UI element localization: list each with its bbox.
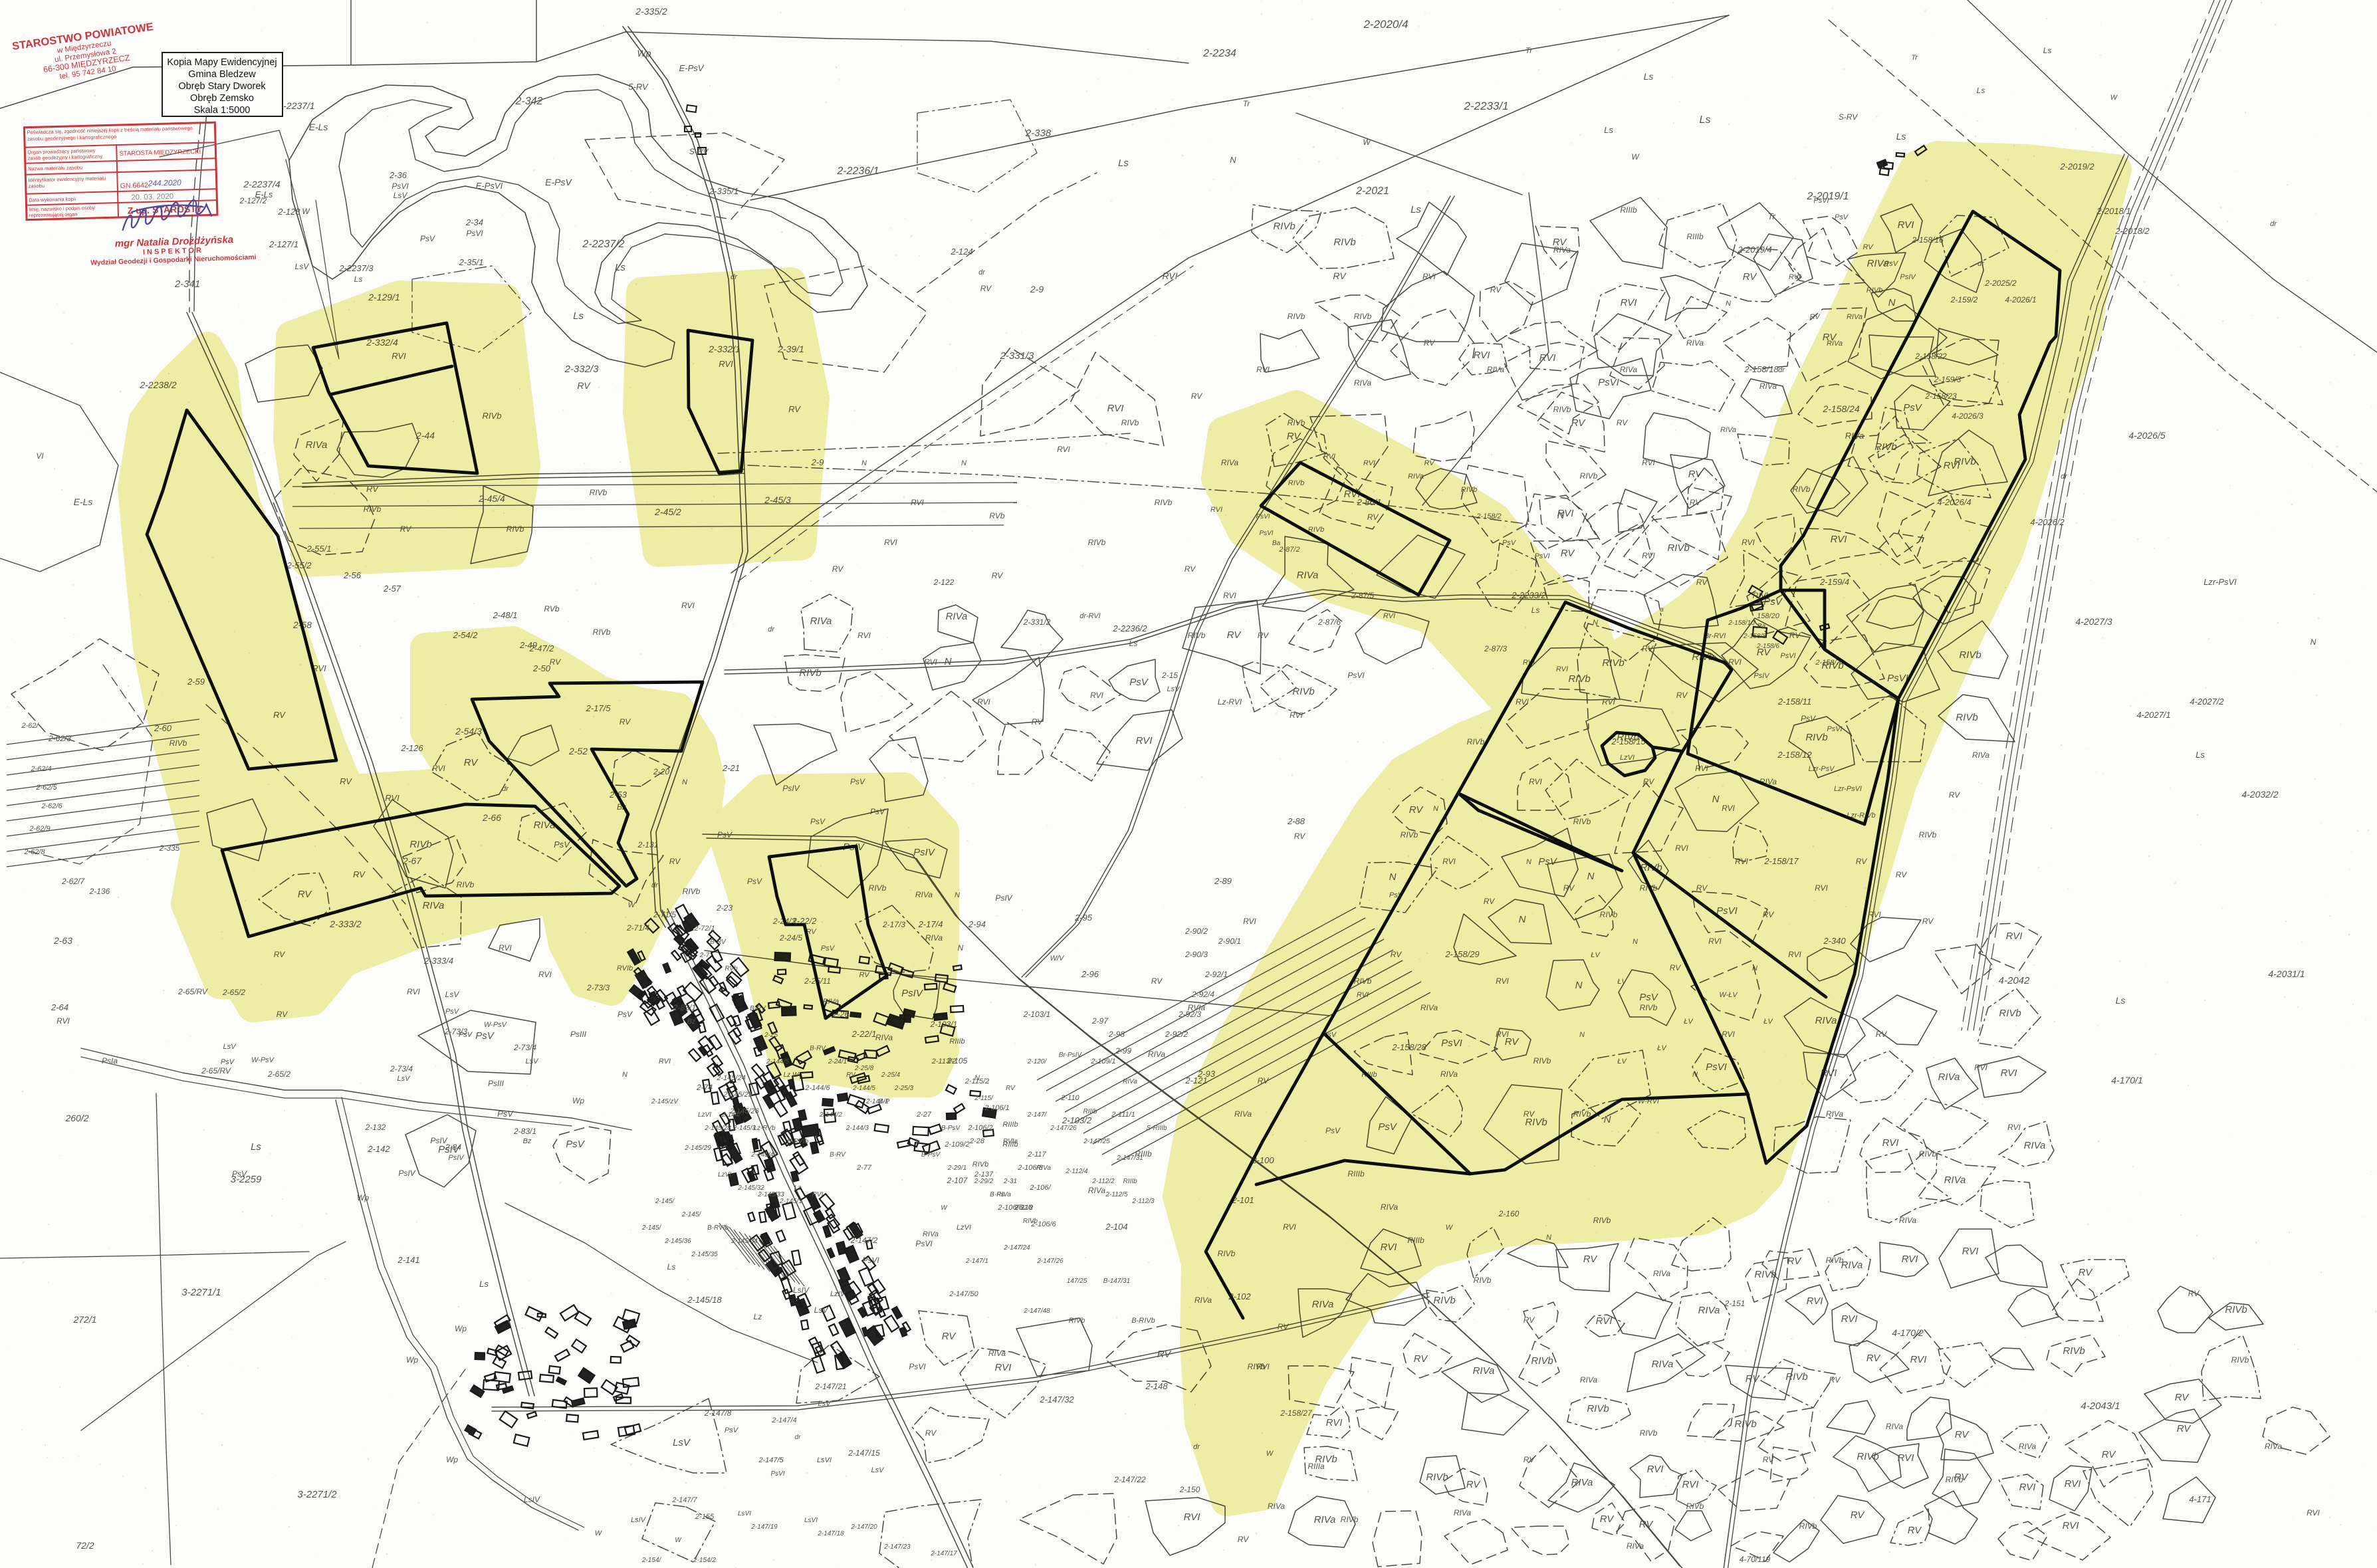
svg-text:3-2271/2: 3-2271/2	[297, 1489, 337, 1500]
svg-text:2-331/3: 2-331/3	[1000, 350, 1035, 362]
svg-text:2-147/22: 2-147/22	[1113, 1475, 1146, 1484]
svg-text:2-73/4: 2-73/4	[390, 1064, 413, 1073]
svg-text:LsV: LsV	[445, 990, 460, 999]
svg-text:2-83/1: 2-83/1	[673, 1003, 696, 1012]
svg-text:PsVI: PsVI	[770, 1470, 784, 1478]
svg-text:4-2042: 4-2042	[1999, 975, 2030, 986]
svg-text:RV: RV	[1466, 1479, 1482, 1490]
svg-text:4-2027/3: 4-2027/3	[2075, 616, 2112, 627]
svg-text:B-PsV: B-PsV	[941, 1125, 961, 1132]
svg-text:2-158/18: 2-158/18	[1744, 364, 1779, 374]
svg-text:RVI: RVI	[1910, 1354, 1927, 1365]
svg-text:2-109/1: 2-109/1	[1090, 1058, 1115, 1065]
svg-text:Ls: Ls	[573, 310, 584, 322]
svg-text:N: N	[1557, 510, 1565, 521]
svg-text:RVb: RVb	[989, 511, 1004, 520]
svg-text:RIVa: RIVa	[2265, 1442, 2283, 1451]
svg-text:2-145/3: 2-145/3	[733, 1125, 756, 1132]
svg-text:5-RV: 5-RV	[628, 82, 649, 92]
svg-text:N: N	[1230, 155, 1236, 165]
svg-text:2-148: 2-148	[1145, 1381, 1168, 1391]
svg-text:2-147/19: 2-147/19	[750, 1523, 778, 1531]
svg-text:2-335: 2-335	[159, 843, 180, 853]
svg-text:LsV: LsV	[394, 191, 408, 200]
svg-text:PsIII: PsIII	[488, 1079, 505, 1088]
svg-text:RIVb: RIVb	[1919, 1149, 1937, 1159]
svg-text:RIVb: RIVb	[1088, 538, 1106, 547]
svg-text:RIVa: RIVa	[1627, 1541, 1644, 1551]
svg-text:RV: RV	[1185, 564, 1196, 574]
svg-text:2-65/2: 2-65/2	[267, 1069, 290, 1079]
svg-text:2-145/zV: 2-145/zV	[651, 1098, 679, 1105]
svg-text:RIVa: RIVa	[1826, 1109, 1844, 1119]
svg-text:2-115/: 2-115/	[974, 1095, 994, 1102]
svg-text:2-65/RV: 2-65/RV	[177, 987, 208, 996]
svg-text:RIVa: RIVa	[1841, 1260, 1863, 1271]
svg-text:RIIIb: RIIIb	[1686, 232, 1704, 241]
svg-text:2-32/2: 2-32/2	[1014, 1204, 1034, 1212]
svg-text:2-87/6: 2-87/6	[1317, 617, 1341, 627]
svg-text:Ls: Ls	[667, 1262, 676, 1272]
svg-text:B-Ps: B-Ps	[990, 1191, 1004, 1198]
svg-text:RVI: RVI	[1090, 691, 1103, 700]
svg-text:RIVb: RIVb	[1474, 1276, 1492, 1285]
svg-text:RIVb: RIVb	[1919, 830, 1937, 840]
svg-text:2-84: 2-84	[445, 1143, 461, 1152]
svg-text:RIVa: RIVa	[1580, 1375, 1598, 1385]
svg-text:2-155: 2-155	[695, 1513, 715, 1521]
svg-text:RVI: RVI	[1136, 735, 1153, 746]
svg-text:2-92/2: 2-92/2	[1165, 1030, 1188, 1039]
svg-text:Lzr-PsVI: Lzr-PsVI	[2204, 577, 2237, 587]
svg-text:RVI: RVI	[538, 970, 552, 979]
svg-text:2-107: 2-107	[947, 1176, 968, 1185]
svg-text:2-136: 2-136	[89, 887, 110, 896]
svg-text:RIVa: RIVa	[1652, 1359, 1674, 1370]
svg-text:2-338: 2-338	[1025, 128, 1052, 139]
svg-text:LsV: LsV	[814, 1305, 829, 1315]
svg-text:2-2233/1: 2-2233/1	[1463, 100, 1508, 112]
svg-text:PsVI: PsVI	[909, 1362, 926, 1371]
svg-text:LsIV: LsIV	[793, 1286, 810, 1295]
svg-text:Ls: Ls	[1977, 86, 1985, 95]
svg-text:RVI: RVI	[812, 1191, 824, 1198]
svg-text:RV: RV	[1600, 1513, 1615, 1525]
svg-text:RIVb: RIVb	[1785, 1371, 1807, 1383]
svg-text:2-62/4: 2-62/4	[30, 765, 51, 773]
svg-text:3-2271/1: 3-2271/1	[181, 1287, 221, 1298]
svg-text:2-144/2: 2-144/2	[819, 1111, 842, 1119]
svg-text:RIVa: RIVa	[1088, 1186, 1106, 1195]
svg-text:Data wykonania kopii: Data wykonania kopii	[29, 196, 76, 203]
svg-text:PsVI: PsVI	[1813, 197, 1829, 205]
svg-text:2-62/8: 2-62/8	[23, 848, 45, 856]
svg-text:2-141: 2-141	[397, 1255, 419, 1265]
svg-text:b: b	[915, 1138, 919, 1145]
svg-text:2-62/9: 2-62/9	[29, 825, 50, 833]
svg-text:RV: RV	[2177, 1423, 2192, 1434]
svg-text:RVI: RVI	[1596, 1315, 1613, 1327]
svg-text:dr-RVI: dr-RVI	[1079, 612, 1100, 620]
svg-text:PsIII: PsIII	[570, 1030, 587, 1039]
svg-text:RIVa: RIVa	[1553, 245, 1571, 255]
svg-text:2-122: 2-122	[933, 578, 955, 587]
svg-text:Wp: Wp	[357, 1193, 369, 1202]
svg-text:Tr: Tr	[1767, 211, 1775, 221]
svg-text:2-28: 2-28	[969, 1137, 985, 1145]
svg-text:RV: RV	[1949, 790, 1960, 800]
svg-text:2-112/3: 2-112/3	[1131, 1198, 1155, 1205]
svg-text:B-RVIb: B-RVIb	[707, 1224, 729, 1232]
svg-text:RIVa: RIVa	[1686, 338, 1704, 348]
svg-text:2-112/2: 2-112/2	[1091, 1178, 1115, 1185]
svg-text:RV: RV	[925, 1428, 937, 1438]
svg-text:Obręb Stary Dworek: Obręb Stary Dworek	[178, 81, 266, 92]
svg-text:RV: RV	[1922, 917, 1934, 926]
svg-text:RIIIb: RIIIb	[1083, 1108, 1097, 1115]
svg-text:2-147/20: 2-147/20	[850, 1523, 877, 1531]
svg-text:RIIIb: RIIIb	[1002, 1121, 1018, 1129]
svg-text:2-147/: 2-147/	[1027, 1111, 1048, 1119]
svg-text:RIVa: RIVa	[1944, 1175, 1966, 1186]
svg-text:S-RV: S-RV	[689, 147, 709, 156]
svg-text:RV: RV	[1851, 1510, 1866, 1521]
svg-text:RVb: RVb	[544, 604, 559, 614]
svg-text:dr: dr	[978, 269, 986, 277]
svg-text:Ls: Ls	[1896, 131, 1906, 142]
svg-text:PsV: PsV	[459, 1031, 473, 1039]
svg-text:2-144/: 2-144/	[721, 1111, 742, 1119]
svg-text:2-147/15: 2-147/15	[848, 1448, 880, 1458]
svg-text:LsV: LsV	[223, 1043, 237, 1051]
svg-text:Tr: Tr	[1243, 99, 1250, 108]
svg-text:RIVa: RIVa	[1148, 1050, 1166, 1059]
svg-text:PsIa: PsIa	[102, 1056, 118, 1065]
svg-text:dr: dr	[2061, 473, 2068, 481]
svg-text:RIVb: RIVb	[2231, 1355, 2249, 1365]
svg-text:2-90/3: 2-90/3	[1185, 950, 1208, 959]
svg-text:RIVb: RIVb	[1799, 1521, 1817, 1531]
svg-text:RV: RV	[1227, 629, 1242, 641]
svg-text:PsV: PsV	[420, 234, 435, 243]
svg-text:PsVI: PsVI	[1347, 671, 1365, 680]
svg-text:2-342: 2-342	[515, 96, 543, 107]
svg-text:2-111/1: 2-111/1	[1111, 1111, 1135, 1119]
svg-text:RV: RV	[1424, 338, 1435, 348]
svg-text:Tr: Tr	[1526, 46, 1533, 55]
svg-text:RIVb: RIVb	[593, 627, 611, 637]
svg-text:Ls: Ls	[354, 275, 363, 284]
svg-text:LsVI: LsVI	[817, 1456, 832, 1464]
svg-text:2-62/3: 2-62/3	[48, 734, 71, 743]
svg-text:LsV: LsV	[871, 1466, 885, 1474]
svg-text:RV: RV	[1876, 1030, 1887, 1039]
svg-text:2-97: 2-97	[1091, 1016, 1109, 1026]
svg-text:LzVI: LzVI	[698, 1111, 711, 1119]
svg-text:RIVa: RIVa	[2024, 1140, 2046, 1151]
svg-text:LzIV: LzIV	[830, 1290, 846, 1298]
svg-text:RVI: RVI	[499, 943, 512, 952]
svg-text:RV: RV	[1787, 1256, 1803, 1267]
svg-text:RVI: RVI	[2307, 1508, 2320, 1517]
svg-text:2-92/1: 2-92/1	[1204, 970, 1228, 979]
svg-text:2-154/: 2-154/	[641, 1557, 662, 1564]
svg-text:2-145/35: 2-145/35	[691, 1251, 718, 1258]
svg-text:W: W	[675, 1537, 682, 1544]
svg-text:RVIa: RVIa	[1003, 1138, 1018, 1145]
svg-text:RIVb: RIVb	[1341, 1515, 1359, 1524]
svg-text:RVI: RVI	[1326, 1417, 1343, 1428]
svg-text:RIVb: RIVb	[1426, 1472, 1448, 1483]
svg-text:2-31: 2-31	[1003, 1178, 1017, 1185]
svg-text:LzVI: LzVI	[718, 1171, 731, 1178]
svg-text:RIVa: RIVa	[1620, 365, 1638, 374]
svg-text:RIVb: RIVb	[1333, 237, 1355, 248]
svg-text:W: W	[1363, 138, 1371, 147]
svg-text:W-PsV: W-PsV	[484, 1021, 508, 1029]
svg-text:RVI: RVI	[407, 987, 420, 996]
svg-text:RIVa: RIVa	[923, 1230, 939, 1238]
svg-text:RV: RV	[1191, 392, 1202, 401]
svg-text:2-72/1: 2-72/1	[693, 925, 715, 933]
svg-text:2-7: 2-7	[699, 952, 710, 959]
svg-text:RVI: RVI	[1243, 917, 1256, 926]
svg-text:2-145/: 2-145/	[681, 1211, 702, 1218]
svg-text:2-128: 2-128	[277, 207, 300, 217]
svg-text:2-77: 2-77	[856, 1164, 872, 1172]
svg-text:W: W	[941, 1204, 948, 1212]
svg-text:Ls: Ls	[2043, 46, 2052, 55]
svg-text:2-117: 2-117	[1027, 1151, 1046, 1159]
svg-text:2-21: 2-21	[722, 763, 740, 773]
svg-text:2-145/18: 2-145/18	[687, 1295, 722, 1305]
svg-text:RV: RV	[1955, 1429, 1970, 1440]
svg-text:RVI: RVI	[1682, 1479, 1699, 1490]
svg-text:2-90/2: 2-90/2	[1185, 927, 1208, 936]
svg-text:E-Ls: E-Ls	[74, 497, 93, 507]
svg-text:RVI: RVI	[1107, 403, 1124, 414]
svg-text:Ls: Ls	[1411, 204, 1421, 215]
svg-text:RVI: RVI	[1184, 1512, 1200, 1523]
svg-text:RV: RV	[1690, 498, 1701, 507]
svg-text:E-PsV: E-PsV	[679, 63, 705, 73]
svg-text:RVI: RVI	[1882, 1137, 1899, 1149]
svg-text:RIVa: RIVa	[1473, 1365, 1495, 1377]
svg-text:Ls: Ls	[1129, 639, 1138, 648]
svg-text:2-147/2: 2-147/2	[850, 1236, 878, 1245]
svg-text:RIVa: RIVa	[1487, 365, 1505, 374]
svg-text:Bz: Bz	[687, 1018, 696, 1026]
svg-text:2-145/28: 2-145/28	[704, 1125, 731, 1132]
svg-text:2-35/1: 2-35/1	[459, 257, 484, 267]
svg-text:2-36: 2-36	[389, 170, 407, 180]
svg-text:PsV: PsV	[1835, 213, 1849, 221]
svg-text:2-333/4: 2-333/4	[423, 956, 453, 966]
svg-text:RIVa: RIVa	[1354, 378, 1372, 388]
svg-text:RV: RV	[577, 380, 591, 391]
svg-text:W: W	[302, 207, 310, 216]
svg-text:RV: RV	[832, 564, 844, 574]
svg-text:RIVb: RIVb	[1023, 1218, 1038, 1225]
svg-text:RVI: RVI	[857, 631, 871, 640]
svg-text:RVI: RVI	[1162, 271, 1177, 281]
svg-text:2-90/1: 2-90/1	[1218, 937, 1241, 946]
svg-text:W/V: W/V	[1050, 954, 1065, 962]
svg-text:VI: VI	[36, 451, 44, 461]
svg-text:20. 03. 2020: 20. 03. 2020	[131, 193, 173, 202]
svg-text:RIVb: RIVb	[1640, 1428, 1658, 1438]
svg-text:B-PsV: B-PsV	[921, 1151, 941, 1159]
svg-text:RIVb: RIVb	[1956, 712, 1978, 723]
svg-text:2-147/26: 2-147/26	[1050, 1125, 1077, 1132]
svg-text:2-2236/2: 2-2236/2	[1112, 623, 1147, 633]
svg-text:E-Ls: E-Ls	[309, 122, 328, 132]
svg-text:RVI: RVI	[924, 657, 937, 667]
svg-text:RIVa: RIVa	[988, 1349, 1006, 1358]
svg-text:RIVb: RIVb	[1288, 312, 1305, 321]
svg-text:RVI: RVI	[1789, 273, 1801, 281]
svg-text:2-145/36: 2-145/36	[664, 1238, 691, 1245]
svg-text:2-331/2: 2-331/2	[1023, 617, 1051, 627]
svg-text:RIVa: RIVa	[1571, 1477, 1593, 1488]
svg-text:RVI: RVI	[2006, 931, 2023, 942]
svg-text:RV: RV	[1908, 1525, 1923, 1536]
svg-text:LsV: LsV	[1167, 685, 1181, 693]
svg-text:2-145/: 2-145/	[655, 1198, 675, 1205]
svg-text:2-48/1: 2-48/1	[493, 610, 518, 620]
svg-text:RIVb: RIVb	[1580, 471, 1598, 481]
svg-text:RIVa: RIVa	[946, 611, 968, 622]
svg-text:4-2027/1: 4-2027/1	[2136, 710, 2170, 720]
svg-text:Ls: Ls	[1644, 71, 1654, 82]
svg-text:RIVa: RIVa	[1899, 1216, 1917, 1225]
svg-text:RIVb: RIVb	[1946, 1475, 1964, 1484]
svg-text:2-341: 2-341	[174, 279, 200, 290]
svg-text:2-154/2: 2-154/2	[693, 1557, 716, 1564]
svg-text:RIVa: RIVa	[1720, 426, 1736, 434]
svg-text:4-2043/1: 4-2043/1	[2081, 1400, 2120, 1412]
svg-text:RVI: RVI	[1642, 458, 1655, 467]
svg-text:N: N	[945, 656, 952, 667]
svg-text:RVI: RVI	[1223, 591, 1236, 600]
svg-text:RVI: RVI	[1898, 1452, 1914, 1464]
svg-text:RIVb: RIVb	[1273, 221, 1295, 232]
svg-text:2-94: 2-94	[968, 919, 986, 929]
svg-text:Lz: Lz	[794, 1184, 802, 1192]
svg-text:W: W	[1631, 152, 1640, 162]
svg-text:RV: RV	[1258, 631, 1269, 640]
svg-text:2-142: 2-142	[367, 1144, 390, 1154]
svg-text:PsV: PsV	[618, 1010, 633, 1019]
svg-text:RIIIb: RIIIb	[1123, 1178, 1137, 1185]
svg-text:2-29/1: 2-29/1	[947, 1165, 966, 1172]
svg-text:RVI: RVI	[884, 538, 897, 547]
svg-text:RVI: RVI	[1807, 1295, 1823, 1307]
svg-text:PsV: PsV	[725, 1426, 739, 1434]
svg-text:2-15: 2-15	[1161, 671, 1178, 680]
svg-text:RIVb: RIVb	[972, 1161, 988, 1169]
svg-text:B-RIVb: B-RIVb	[1131, 1317, 1155, 1325]
svg-text:2-74: 2-74	[696, 1083, 713, 1092]
svg-text:2-9: 2-9	[1030, 284, 1044, 294]
svg-text:W-PsV: W-PsV	[251, 1056, 275, 1064]
svg-text:RV: RV	[1809, 313, 1821, 321]
svg-text:Ls: Ls	[251, 1141, 261, 1153]
svg-text:4-2026/2: 4-2026/2	[2030, 517, 2065, 527]
svg-text:RV: RV	[2102, 1449, 2117, 1460]
svg-text:RVI: RVI	[1422, 272, 1436, 281]
svg-text:RIVa: RIVa	[2019, 1442, 2037, 1451]
svg-text:RV: RV	[2188, 1289, 2200, 1298]
svg-text:4-2026/5: 4-2026/5	[2128, 430, 2165, 441]
svg-text:RV: RV	[1414, 1353, 1429, 1365]
svg-text:Wp: Wp	[446, 1455, 458, 1464]
svg-text:LsIV: LsIV	[631, 1516, 647, 1524]
svg-text:RV: RV	[1524, 1315, 1535, 1325]
svg-text:Kopia Mapy Ewidencyjnej: Kopia Mapy Ewidencyjnej	[167, 57, 277, 68]
svg-text:dr: dr	[1778, 366, 1785, 374]
svg-text:2-145/1: 2-145/1	[779, 1198, 802, 1205]
svg-text:PsV: PsV	[497, 1109, 514, 1119]
svg-text:2-95: 2-95	[1074, 913, 1093, 923]
svg-text:PsIV: PsIV	[430, 1136, 447, 1145]
svg-text:2-124: 2-124	[950, 247, 972, 257]
svg-text:RVI: RVI	[977, 697, 990, 707]
svg-text:RIVb: RIVb	[1826, 1256, 1844, 1265]
svg-text:B-147/31: B-147/31	[1103, 1278, 1131, 1285]
svg-text:W: W	[2110, 94, 2118, 102]
svg-text:Bz: Bz	[523, 1137, 532, 1145]
svg-text:2-92/3: 2-92/3	[1178, 1010, 1201, 1019]
svg-text:2-2021: 2-2021	[1355, 185, 1389, 197]
svg-text:272/1: 272/1	[72, 1314, 96, 1325]
svg-text:72/2: 72/2	[76, 1540, 94, 1551]
svg-text:2-147/25: 2-147/25	[1083, 1138, 1110, 1145]
svg-text:RV: RV	[2079, 1267, 2094, 1278]
svg-text:PsV: PsV	[475, 1030, 495, 1042]
svg-text:LsVI: LsVI	[804, 1517, 818, 1524]
svg-text:RVI: RVI	[2019, 1482, 2036, 1493]
svg-text:Wp: Wp	[406, 1355, 418, 1365]
svg-text:dr: dr	[2270, 220, 2277, 228]
svg-text:4-2032/2: 4-2032/2	[2241, 789, 2278, 800]
svg-text:Tr: Tr	[1911, 54, 1918, 62]
svg-text:RV: RV	[1617, 418, 1628, 427]
svg-text:RVb: RVb	[725, 965, 738, 972]
svg-text:PsV: PsV	[566, 1139, 586, 1150]
svg-text:RIIIa: RIIIa	[1307, 1462, 1325, 1471]
svg-text:2-145/47: 2-145/47	[750, 1151, 778, 1159]
svg-text:LsV: LsV	[397, 1075, 411, 1083]
svg-text:RV: RV	[1294, 832, 1305, 841]
svg-text:W: W	[595, 1529, 603, 1537]
svg-text:RIVa: RIVa	[1036, 1165, 1051, 1172]
svg-text:2-62/7: 2-62/7	[61, 877, 85, 886]
svg-text:RVI: RVI	[2001, 1067, 2017, 1079]
svg-text:4-70/119: 4-70/119	[1740, 1555, 1771, 1564]
svg-text:RV: RV	[1561, 548, 1576, 559]
svg-text:2-335/1: 2-335/1	[709, 186, 738, 196]
svg-text:PsVI: PsVI	[392, 181, 409, 191]
svg-text:Ls: Ls	[615, 262, 625, 273]
svg-text:RVI: RVI	[2063, 1520, 2079, 1531]
svg-text:Ls: Ls	[1700, 114, 1711, 126]
svg-text:2-89: 2-89	[1214, 876, 1232, 886]
svg-text:2-145/: 2-145/	[641, 1224, 662, 1232]
svg-text:RVI: RVI	[659, 1058, 671, 1065]
svg-text:2-145/25: 2-145/25	[723, 1091, 752, 1099]
svg-text:2-332/3: 2-332/3	[564, 364, 600, 375]
